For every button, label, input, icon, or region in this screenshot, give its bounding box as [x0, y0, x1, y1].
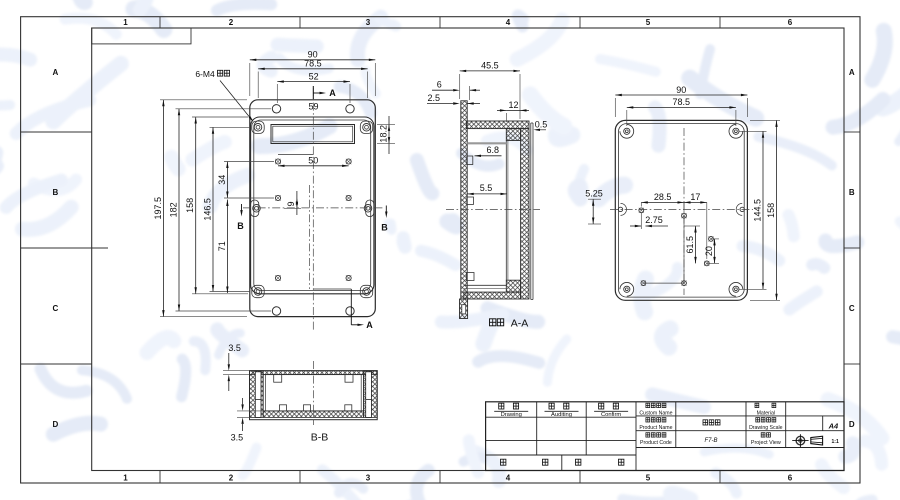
svg-text:2.75: 2.75: [645, 215, 663, 225]
svg-text:2: 2: [229, 473, 234, 482]
svg-text:F7-B: F7-B: [704, 438, 717, 444]
svg-text:34: 34: [217, 175, 227, 185]
svg-text:20: 20: [704, 246, 714, 256]
svg-text:C: C: [849, 304, 855, 313]
svg-text:B: B: [237, 221, 244, 231]
svg-text:A: A: [849, 68, 855, 77]
svg-text:6: 6: [437, 79, 442, 89]
svg-text:Drawing: Drawing: [501, 412, 522, 418]
svg-text:158: 158: [185, 198, 195, 213]
svg-text:9: 9: [286, 201, 296, 206]
svg-text:Product Name: Product Name: [639, 425, 672, 431]
svg-text:Project View: Project View: [751, 440, 781, 446]
svg-text:17: 17: [690, 192, 700, 202]
svg-text:144.5: 144.5: [752, 199, 762, 222]
svg-text:B: B: [381, 223, 388, 233]
svg-text:B-B: B-B: [311, 432, 329, 444]
svg-text:6.8: 6.8: [487, 145, 500, 155]
svg-text:2: 2: [229, 18, 234, 27]
svg-text:4: 4: [506, 18, 511, 27]
svg-text:3: 3: [366, 473, 371, 482]
svg-text:Drawing Scale: Drawing Scale: [749, 425, 783, 431]
svg-text:52: 52: [309, 71, 319, 81]
svg-text:4: 4: [506, 473, 511, 482]
svg-text:18.2: 18.2: [379, 125, 389, 143]
svg-text:78.5: 78.5: [304, 59, 322, 69]
svg-text:A4: A4: [828, 422, 839, 431]
svg-text:6: 6: [788, 18, 793, 27]
svg-text:5.25: 5.25: [585, 189, 603, 199]
svg-text:D: D: [53, 420, 59, 429]
svg-text:Product Code: Product Code: [640, 440, 672, 446]
svg-text:158: 158: [766, 203, 776, 218]
svg-text:3: 3: [366, 18, 371, 27]
svg-text:50: 50: [308, 156, 318, 166]
svg-text:2.5: 2.5: [428, 93, 441, 103]
svg-text:78.5: 78.5: [673, 97, 691, 107]
svg-text:1: 1: [123, 473, 128, 482]
svg-text:0.5: 0.5: [535, 119, 548, 129]
svg-text:45.5: 45.5: [481, 61, 499, 71]
svg-text:A: A: [53, 68, 59, 77]
svg-text:12: 12: [508, 100, 518, 110]
svg-text:Custom Name: Custom Name: [639, 410, 672, 416]
svg-text:A: A: [366, 320, 373, 330]
svg-text:61.5: 61.5: [685, 236, 695, 254]
svg-text:A-A: A-A: [511, 317, 529, 329]
svg-text:C: C: [53, 304, 59, 313]
svg-text:146.5: 146.5: [202, 198, 212, 221]
svg-text:6: 6: [788, 473, 793, 482]
svg-text:28.5: 28.5: [654, 192, 672, 202]
svg-text:D: D: [849, 420, 855, 429]
svg-text:6-M4: 6-M4: [195, 69, 215, 79]
svg-text:182: 182: [168, 202, 178, 217]
svg-text:Material: Material: [757, 410, 775, 416]
svg-text:197.5: 197.5: [153, 197, 163, 220]
svg-text:1:1: 1:1: [832, 439, 839, 445]
svg-text:1: 1: [123, 18, 128, 27]
svg-text:3.5: 3.5: [228, 343, 241, 353]
svg-text:A: A: [329, 88, 336, 98]
svg-text:3.5: 3.5: [231, 433, 244, 443]
svg-text:5.5: 5.5: [480, 183, 493, 193]
svg-text:90: 90: [676, 85, 686, 95]
svg-text:71: 71: [217, 241, 227, 251]
svg-text:5: 5: [646, 18, 651, 27]
svg-text:Confirm: Confirm: [601, 412, 621, 418]
svg-text:B: B: [849, 188, 855, 197]
svg-text:59: 59: [308, 102, 318, 112]
svg-text:B: B: [53, 188, 59, 197]
svg-text:5: 5: [646, 473, 651, 482]
svg-text:Auditing: Auditing: [551, 412, 572, 418]
